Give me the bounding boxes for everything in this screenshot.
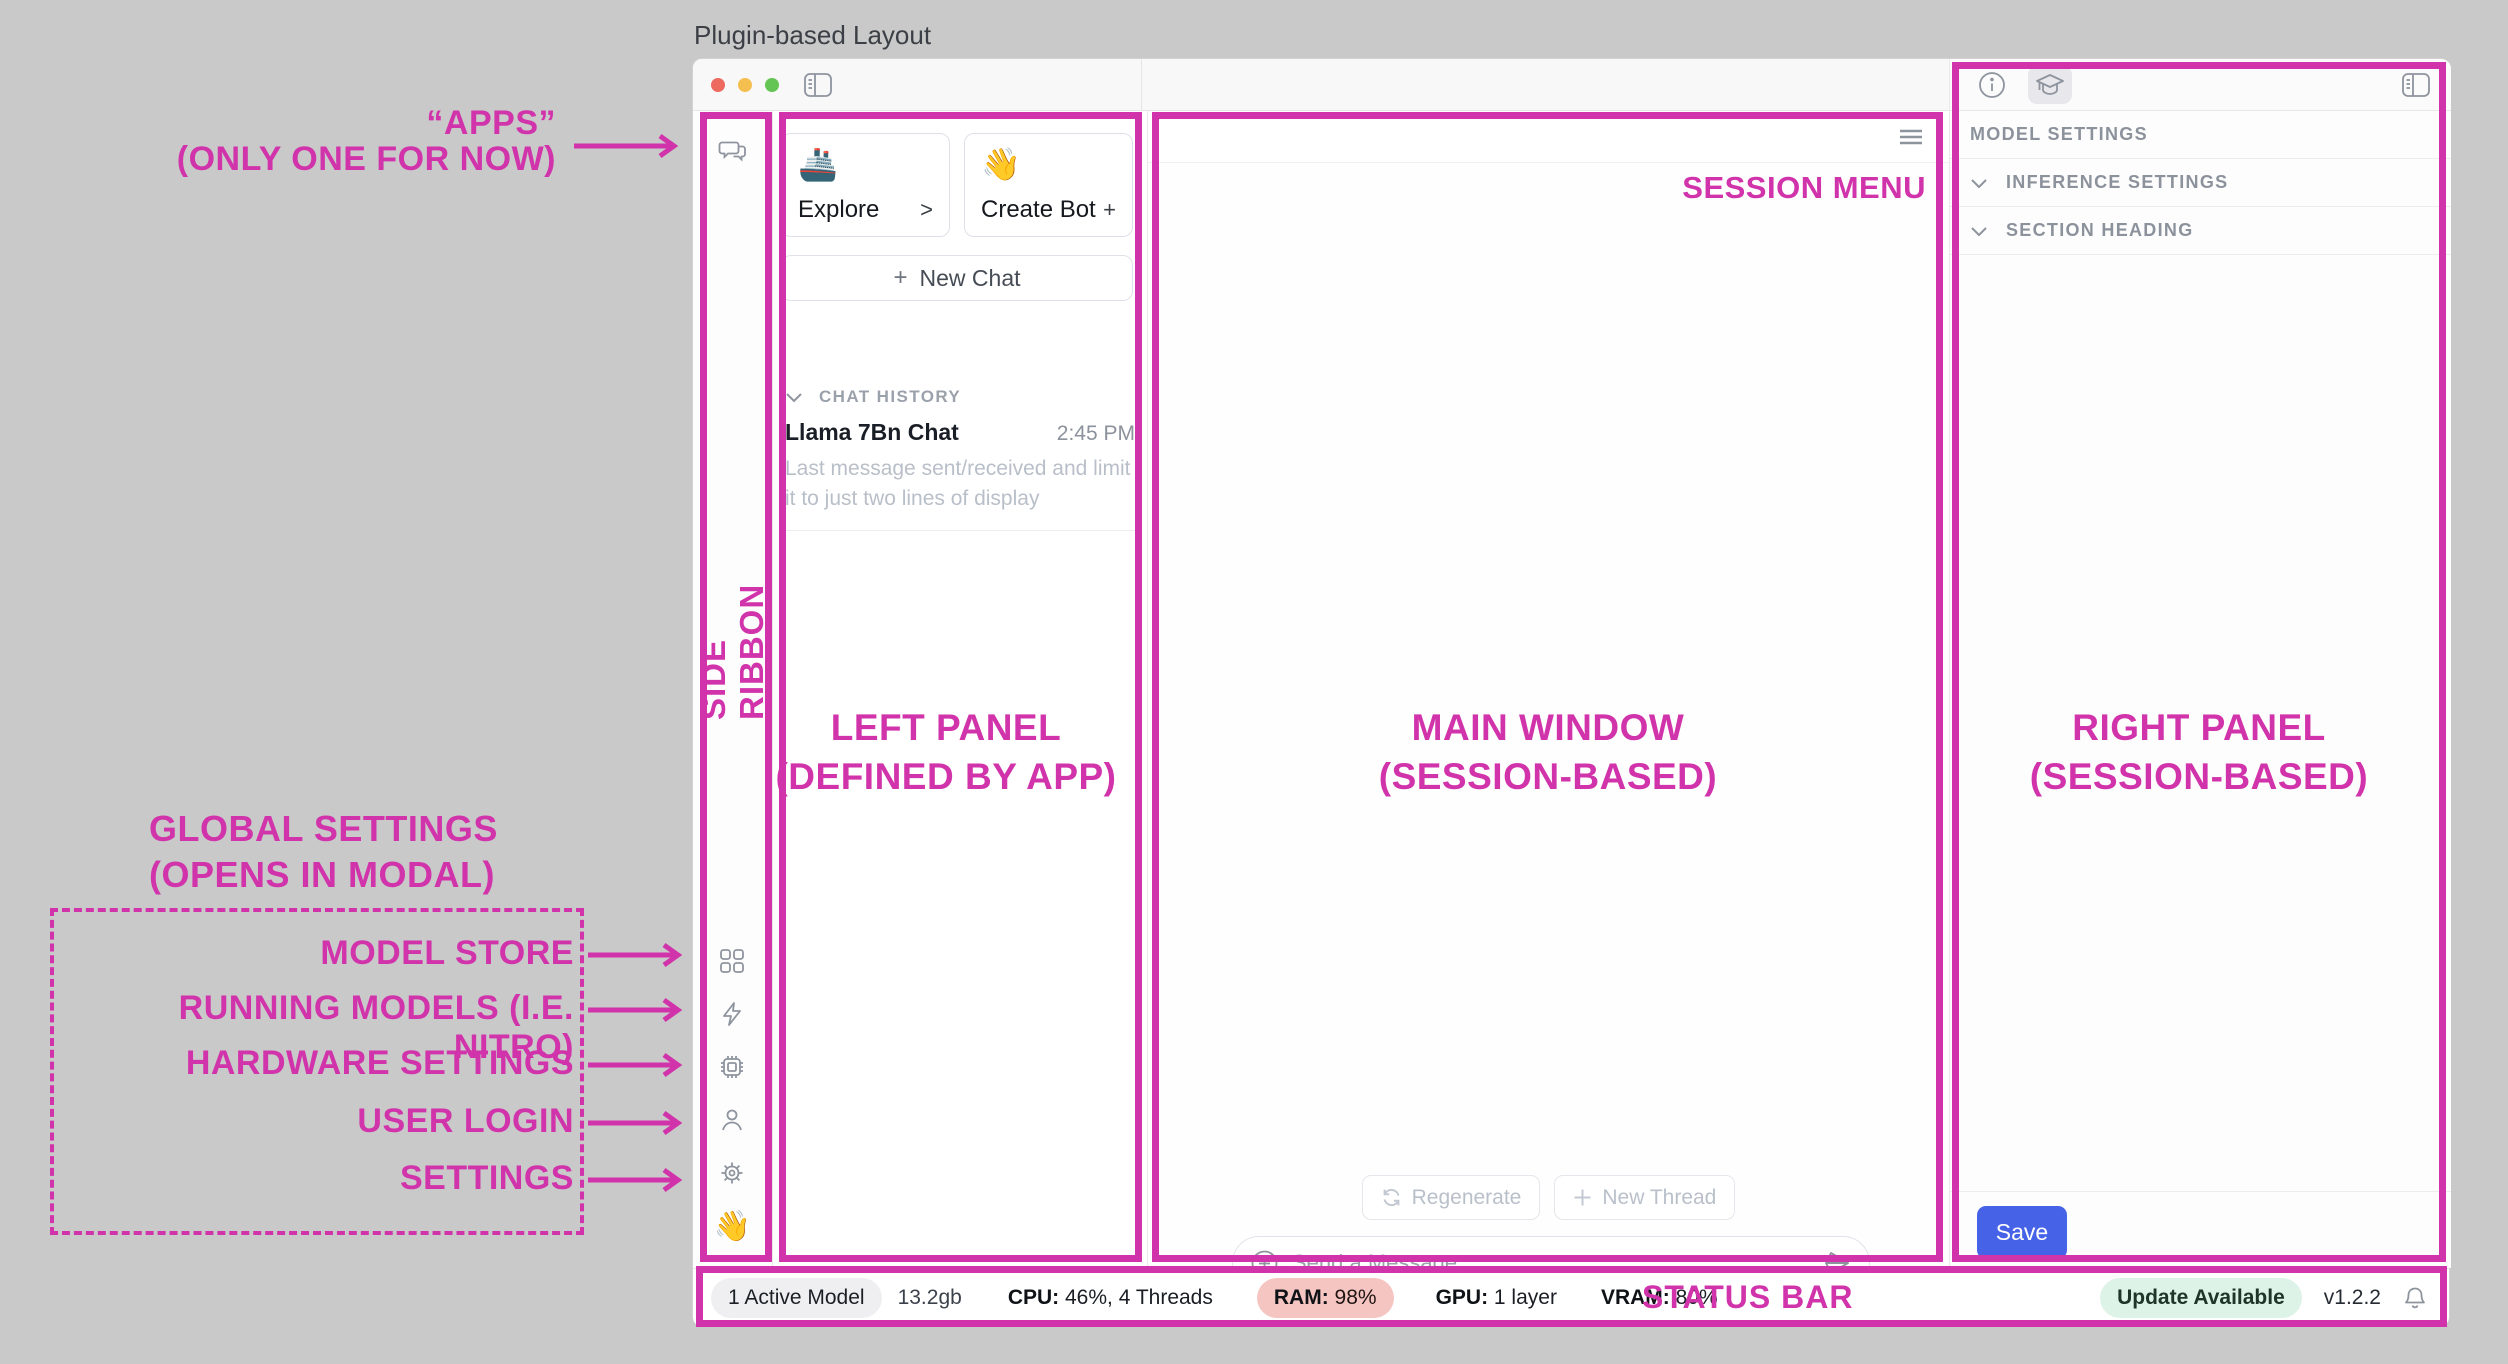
save-button[interactable]: Save [1977, 1206, 2067, 1259]
gpu-value: 1 layer [1488, 1286, 1557, 1309]
new-chat-label: New Chat [920, 265, 1021, 292]
annotation-main-window: MAIN WINDOW (SESSION-BASED) [1328, 704, 1768, 802]
ribbon-bottom-group: 👋 [714, 947, 751, 1242]
close-window-button[interactable] [711, 78, 725, 92]
inference-settings-label: INFERENCE SETTINGS [2006, 172, 2228, 193]
regenerate-button[interactable]: Regenerate [1362, 1175, 1541, 1220]
save-divider [1950, 1191, 2451, 1192]
annotation-right-panel: RIGHT PANEL (SESSION-BASED) [1979, 704, 2419, 802]
annotation-right-panel-line1: RIGHT PANEL [1979, 704, 2419, 753]
refresh-icon [1381, 1187, 1402, 1208]
annotation-session-menu: SESSION MENU [1560, 170, 1926, 206]
annotation-global-settings-line2: (OPENS IN MODAL) [149, 852, 498, 898]
annotation-global-settings-line1: GLOBAL SETTINGS [149, 806, 498, 852]
model-store-icon[interactable] [718, 947, 746, 975]
app-cards: 🚢 Explore > 👋 Create Bot + [781, 133, 1133, 237]
status-bar: 1 Active Model 13.2gb CPU: 46%, 4 Thread… [693, 1268, 2449, 1327]
explore-card[interactable]: 🚢 Explore > [781, 133, 950, 237]
create-bot-card[interactable]: 👋 Create Bot + [964, 133, 1133, 237]
right-panel-header [1950, 59, 2451, 111]
main-header [1148, 111, 1949, 163]
version-label: v1.2.2 [2324, 1286, 2381, 1310]
section-heading-row[interactable]: SECTION HEADING [1950, 207, 2451, 255]
regenerate-label: Regenerate [1412, 1186, 1522, 1210]
create-bot-card-label: Create Bot [981, 196, 1096, 224]
page-title: Plugin-based Layout [694, 20, 931, 51]
ship-emoji-icon: 🚢 [798, 147, 933, 181]
annotation-user-login: USER LOGIN [60, 1102, 574, 1141]
annotation-status-bar: STATUS BAR [1642, 1279, 1853, 1316]
active-model-badge: 1 Active Model [711, 1278, 882, 1318]
chat-history-item[interactable]: Llama 7Bn Chat 2:45 PM Last message sent… [785, 419, 1135, 531]
right-panel: MODEL SETTINGS INFERENCE SETTINGS SECTIO… [1949, 59, 2451, 1268]
user-login-icon[interactable] [718, 1106, 746, 1134]
session-menu-icon[interactable] [1899, 128, 1923, 146]
annotation-model-store: MODEL STORE [60, 934, 574, 973]
create-bot-plus: + [1103, 197, 1116, 223]
annotation-left-panel-line2: (DEFINED BY APP) [726, 753, 1166, 802]
gpu-status: GPU: 1 layer [1436, 1286, 1557, 1310]
app-window: 👋 🚢 Explore > 👋 Create Bot + + New [692, 58, 2450, 1326]
model-size-value: 13.2gb [898, 1286, 962, 1310]
inference-settings-row[interactable]: INFERENCE SETTINGS [1950, 159, 2451, 207]
update-available-badge[interactable]: Update Available [2100, 1278, 2302, 1318]
wave-hand-icon[interactable]: 👋 [714, 1212, 751, 1242]
settings-gear-icon[interactable] [718, 1159, 746, 1187]
cpu-value: 46%, 4 Threads [1059, 1286, 1213, 1309]
new-chat-button[interactable]: + New Chat [781, 255, 1133, 301]
annotation-hardware-settings: HARDWARE SETTINGS [60, 1044, 574, 1083]
thread-actions: Regenerate New Thread [1148, 1175, 1949, 1220]
annotation-main-window-line1: MAIN WINDOW [1328, 704, 1768, 753]
main-window: Regenerate New Thread [1148, 111, 1949, 1268]
gpu-label: GPU: [1436, 1286, 1489, 1309]
annotation-right-panel-line2: (SESSION-BASED) [1979, 753, 2419, 802]
explore-chevron: > [920, 197, 933, 223]
cpu-label: CPU: [1008, 1286, 1059, 1309]
annotation-global-settings: GLOBAL SETTINGS (OPENS IN MODAL) [149, 806, 498, 898]
annotation-side-ribbon: SIDE RIBBON [697, 520, 769, 720]
annotation-left-panel-line1: LEFT PANEL [726, 704, 1166, 753]
annotation-settings: SETTINGS [60, 1159, 574, 1198]
left-sidebar-toggle-icon[interactable] [803, 72, 833, 98]
annotation-left-panel: LEFT PANEL (DEFINED BY APP) [726, 704, 1166, 802]
ram-status-badge: RAM: 98% [1257, 1278, 1394, 1318]
zoom-window-button[interactable] [765, 78, 779, 92]
annotation-arrow-user-login [586, 1109, 690, 1137]
left-panel: 🚢 Explore > 👋 Create Bot + + New Chat [773, 111, 1148, 1268]
annotation-arrow-hardware-settings [586, 1051, 690, 1079]
minimize-window-button[interactable] [738, 78, 752, 92]
annotation-arrow-apps [572, 132, 686, 160]
chevron-down-icon [785, 391, 803, 403]
new-thread-label: New Thread [1602, 1186, 1716, 1210]
chat-app-icon[interactable] [717, 137, 749, 167]
annotation-arrow-settings [586, 1166, 690, 1194]
explore-card-label: Explore [798, 196, 879, 224]
chat-history-header[interactable]: CHAT HISTORY [785, 387, 961, 407]
status-bar-left: 1 Active Model 13.2gb CPU: 46%, 4 Thread… [711, 1269, 1762, 1327]
hardware-settings-icon[interactable] [718, 1053, 746, 1081]
chat-item-title: Llama 7Bn Chat [785, 419, 959, 446]
annotation-main-window-line2: (SESSION-BASED) [1328, 753, 1768, 802]
cpu-status: CPU: 46%, 4 Threads [1008, 1286, 1213, 1310]
chat-history-label: CHAT HISTORY [819, 387, 961, 407]
annotation-apps-line2: (ONLY ONE FOR NOW) [160, 142, 556, 178]
section-heading-label: SECTION HEADING [2006, 220, 2194, 241]
plus-icon: + [894, 264, 908, 292]
annotation-arrow-model-store [586, 941, 690, 969]
wave-emoji-icon: 👋 [981, 147, 1116, 181]
chevron-down-icon [1970, 225, 1988, 237]
annotation-arrow-running-models [586, 996, 690, 1024]
titlebar-divider [1141, 59, 1142, 111]
right-sidebar-toggle-icon[interactable] [2401, 72, 2431, 98]
ram-value: 98% [1329, 1286, 1377, 1309]
model-settings-tab-icon[interactable] [2028, 66, 2072, 104]
new-thread-button[interactable]: New Thread [1554, 1175, 1735, 1220]
ram-label: RAM: [1274, 1286, 1329, 1309]
plus-icon [1573, 1188, 1592, 1207]
annotation-apps-line1: “APPS” [160, 106, 556, 142]
chat-item-preview: Last message sent/received and limit it … [785, 454, 1135, 514]
traffic-lights [711, 78, 779, 92]
model-settings-heading: MODEL SETTINGS [1950, 111, 2451, 159]
model-settings-heading-label: MODEL SETTINGS [1970, 124, 2148, 145]
chat-item-time: 2:45 PM [1057, 422, 1135, 446]
annotation-apps: “APPS” (ONLY ONE FOR NOW) [160, 106, 556, 177]
running-models-icon[interactable] [718, 1000, 746, 1028]
chevron-down-icon [1970, 177, 1988, 189]
notifications-bell-icon[interactable] [2403, 1285, 2427, 1311]
info-tab-icon[interactable] [1970, 66, 2014, 104]
status-bar-right: Update Available v1.2.2 [2100, 1269, 2427, 1327]
